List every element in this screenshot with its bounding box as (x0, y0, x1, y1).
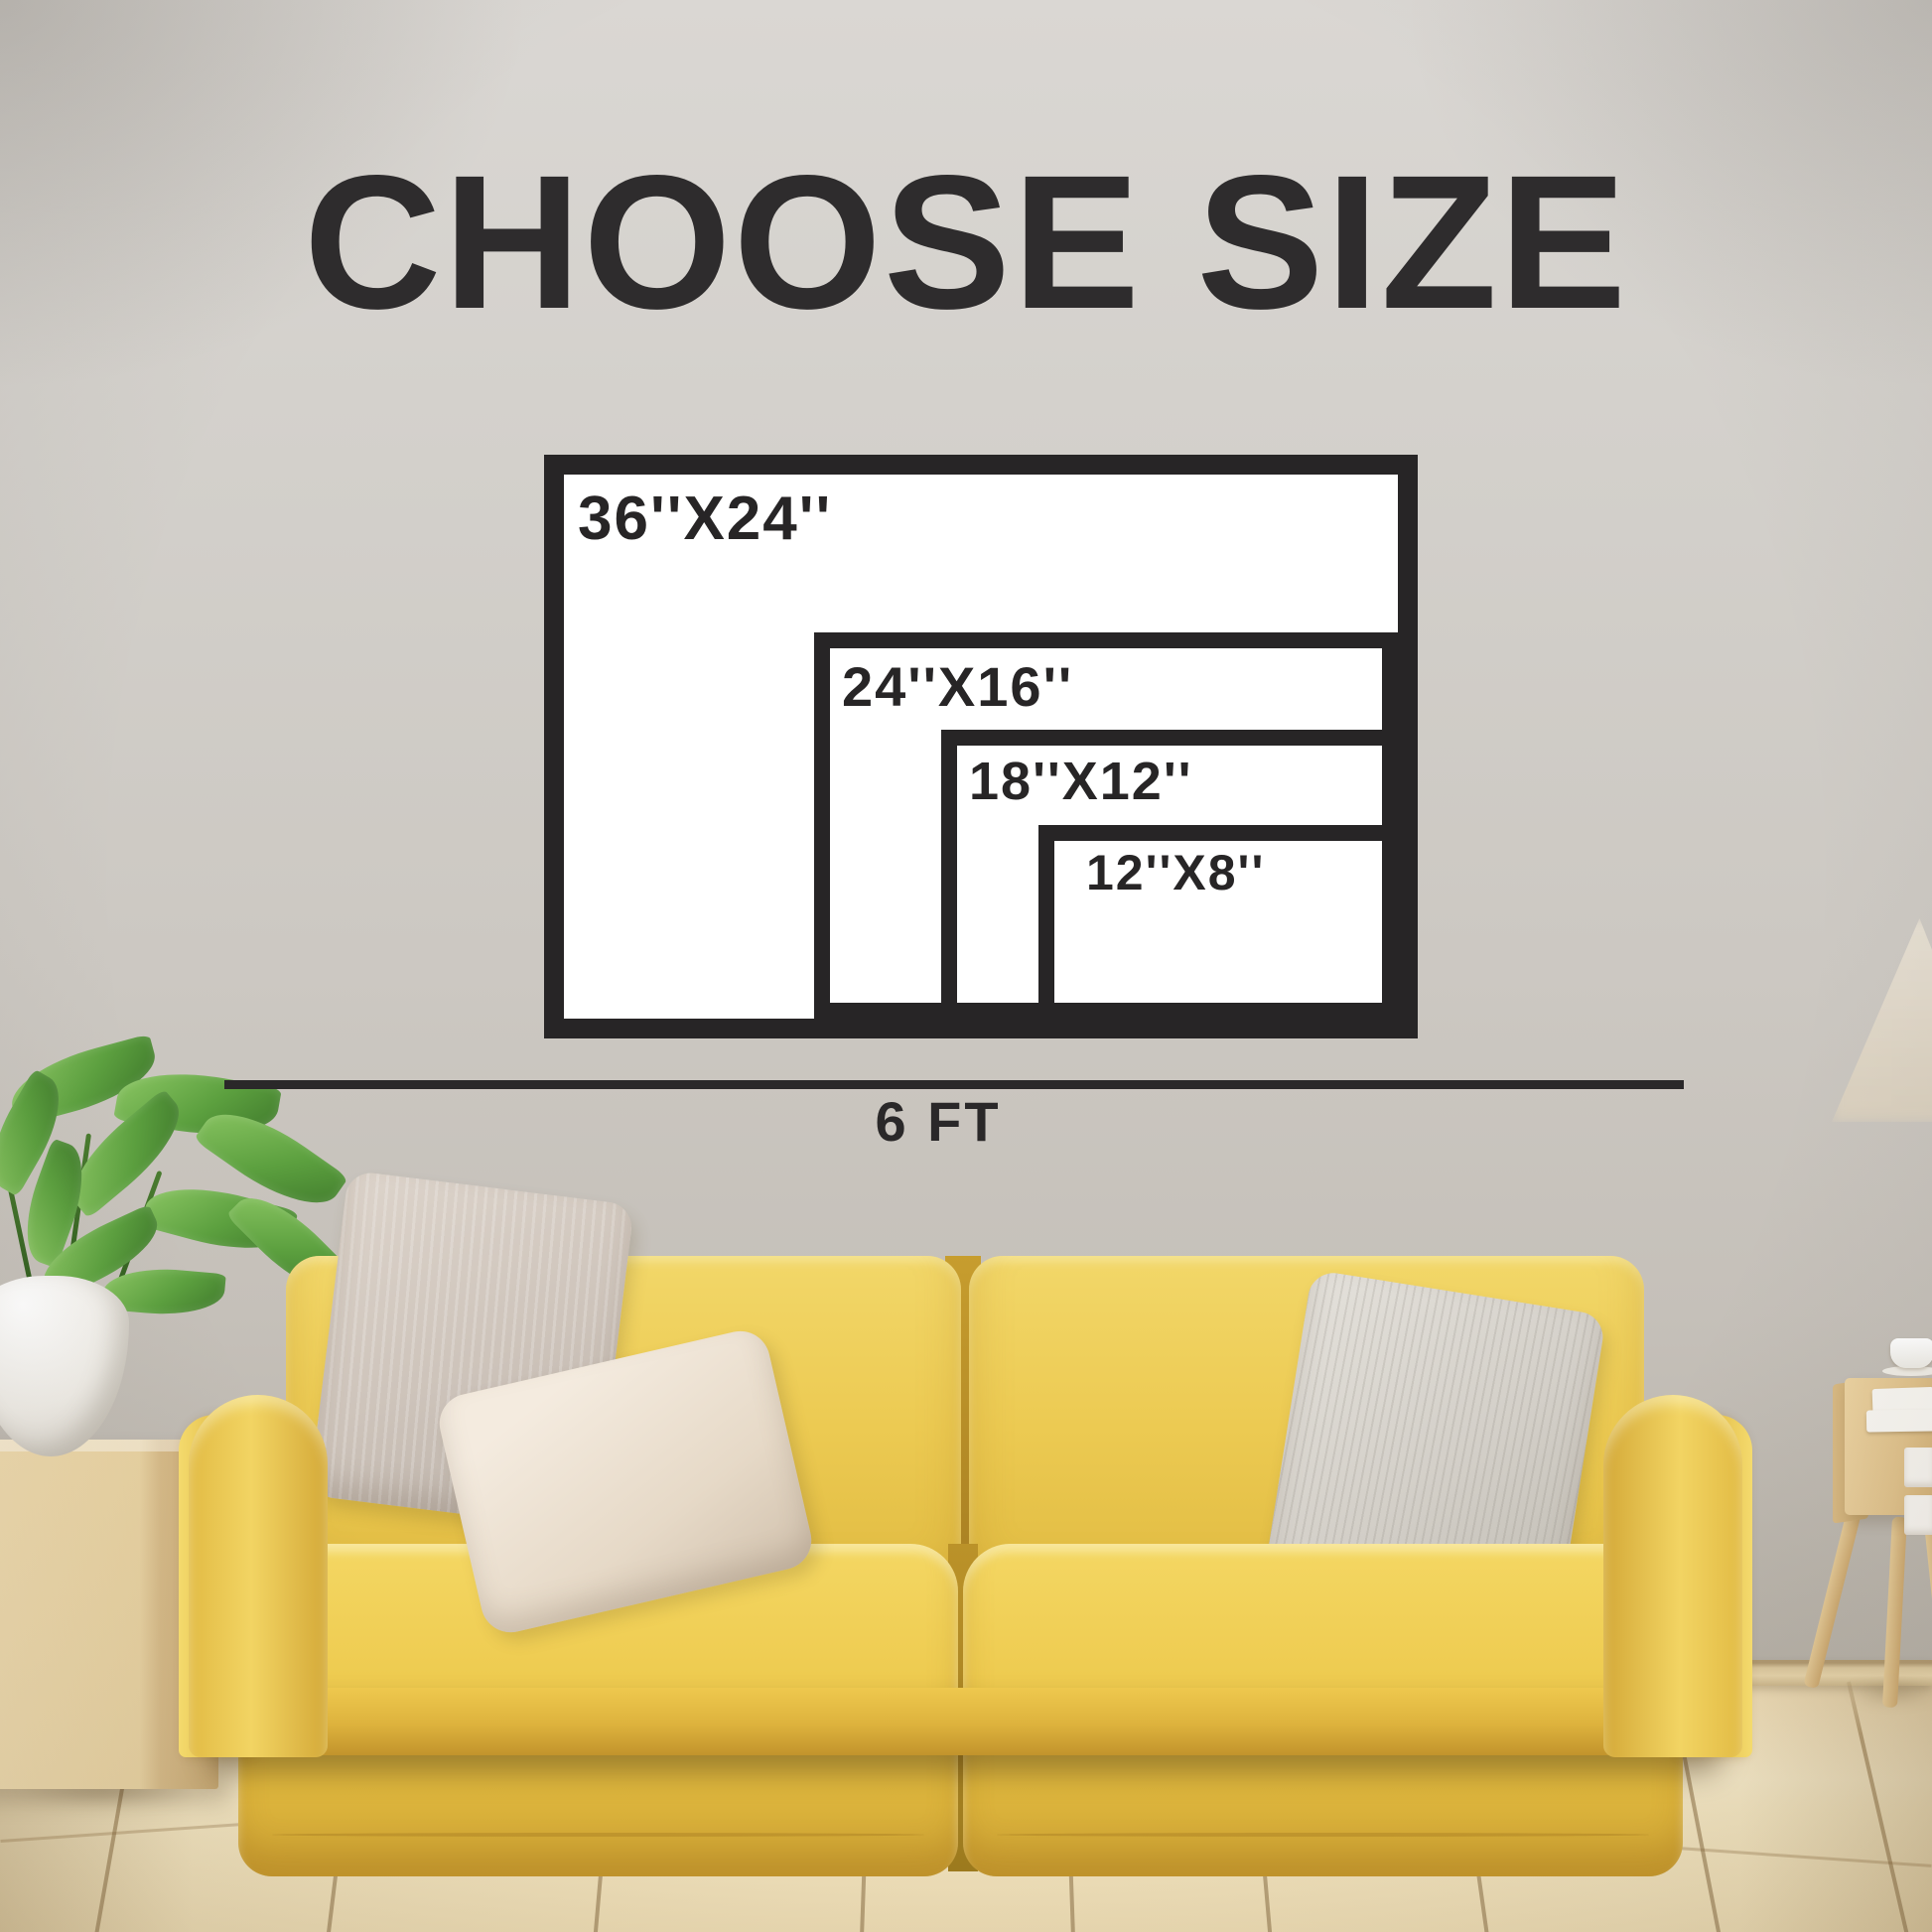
sofa-arm (1603, 1395, 1742, 1757)
size-label-36x24: 36''X24'' (578, 488, 832, 550)
size-label-12x8: 12''X8'' (1086, 848, 1265, 897)
product-size-guide-image: CHOOSE SIZE 36''X24'' 24''X16'' 18''X12'… (0, 0, 1932, 1932)
side-table-drawer (1904, 1495, 1932, 1535)
sofa-arm (189, 1395, 328, 1757)
scale-label: 6 FT (789, 1094, 1087, 1150)
size-label-24x16: 24''X16'' (842, 659, 1073, 715)
side-table-drawer (1904, 1448, 1932, 1487)
sofa-base (208, 1688, 1723, 1755)
book (1866, 1409, 1932, 1432)
page-title: CHOOSE SIZE (0, 147, 1932, 338)
yellow-sofa (179, 1162, 1752, 1886)
size-label-18x12: 18''X12'' (969, 755, 1193, 808)
scale-ruler-line (224, 1080, 1684, 1089)
coffee-cup (1890, 1338, 1932, 1368)
